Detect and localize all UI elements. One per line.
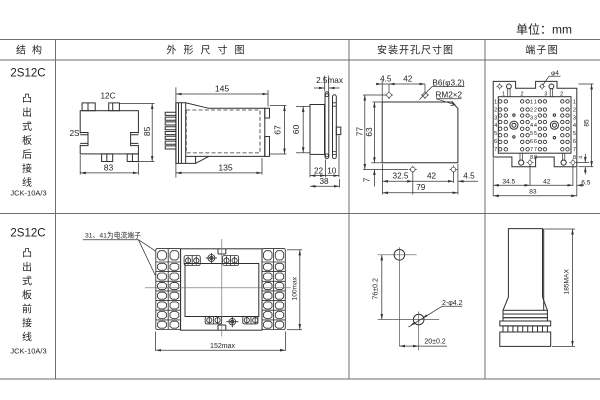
svg-text:12C: 12C — [101, 91, 116, 100]
svg-text:单位：mm: 单位：mm — [516, 22, 572, 37]
svg-text:1: 1 — [573, 100, 576, 106]
svg-text:6: 6 — [534, 139, 537, 145]
svg-text:凸: 凸 — [22, 248, 32, 260]
svg-text:4: 4 — [578, 156, 584, 159]
svg-text:2: 2 — [521, 92, 524, 98]
svg-text:3: 3 — [530, 115, 533, 121]
svg-text:2: 2 — [573, 107, 576, 113]
svg-text:3: 3 — [573, 115, 576, 121]
svg-text:6: 6 — [573, 139, 576, 145]
svg-text:67: 67 — [272, 125, 282, 135]
svg-text:3: 3 — [544, 92, 547, 98]
svg-text:77: 77 — [355, 127, 364, 137]
svg-text:31、41为电流端子: 31、41为电流端子 — [85, 230, 141, 239]
svg-text:结构: 结构 — [16, 44, 48, 57]
svg-text:8: 8 — [534, 155, 537, 161]
svg-text:出: 出 — [22, 261, 32, 274]
svg-text:145: 145 — [215, 84, 230, 94]
svg-text:后: 后 — [22, 149, 32, 161]
svg-text:凸: 凸 — [22, 93, 32, 105]
svg-text:34.5: 34.5 — [502, 178, 515, 185]
svg-text:83: 83 — [529, 189, 537, 196]
svg-text:6: 6 — [530, 139, 533, 145]
svg-text:接: 接 — [22, 317, 32, 330]
svg-text:2-φ4.2: 2-φ4.2 — [442, 300, 463, 307]
svg-text:10: 10 — [327, 167, 337, 176]
svg-text:5: 5 — [534, 131, 537, 137]
svg-text:2S12C: 2S12C — [10, 68, 45, 80]
svg-text:8: 8 — [530, 155, 533, 161]
svg-text:4: 4 — [573, 123, 576, 129]
svg-text:板: 板 — [22, 134, 32, 147]
svg-text:135: 135 — [218, 162, 233, 172]
svg-text:4: 4 — [534, 123, 537, 129]
svg-text:3: 3 — [534, 115, 537, 121]
svg-text:85: 85 — [142, 126, 152, 136]
svg-text:式: 式 — [22, 120, 32, 133]
svg-text:B6(φ3.2): B6(φ3.2) — [432, 78, 464, 87]
svg-text:76±0.2: 76±0.2 — [372, 278, 379, 299]
svg-text:20±0.2: 20±0.2 — [424, 339, 445, 346]
svg-text:7: 7 — [494, 147, 497, 153]
svg-text:7: 7 — [362, 177, 371, 182]
svg-text:线: 线 — [22, 331, 32, 344]
svg-text:42: 42 — [427, 172, 437, 181]
svg-text:1: 1 — [494, 100, 497, 106]
svg-text:83: 83 — [104, 162, 114, 172]
svg-text:2: 2 — [560, 92, 563, 98]
svg-text:线: 线 — [22, 176, 32, 189]
svg-text:板: 板 — [22, 289, 32, 302]
svg-text:JCK-10A/3: JCK-10A/3 — [10, 189, 46, 198]
svg-text:22: 22 — [314, 167, 324, 176]
svg-text:60: 60 — [291, 125, 301, 135]
svg-text:85: 85 — [583, 119, 590, 127]
svg-text:外形尺寸图: 外形尺寸图 — [167, 44, 252, 57]
svg-text:2S: 2S — [70, 129, 81, 138]
svg-text:100max: 100max — [292, 276, 299, 300]
svg-text:6: 6 — [494, 139, 497, 145]
svg-text:端子图: 端子图 — [525, 44, 559, 57]
svg-text:2: 2 — [530, 107, 533, 113]
svg-text:152max: 152max — [210, 343, 235, 350]
svg-text:79: 79 — [416, 183, 426, 192]
svg-text:接: 接 — [22, 162, 32, 175]
svg-text:5: 5 — [530, 131, 533, 137]
svg-text:RM2×2: RM2×2 — [435, 90, 462, 99]
svg-text:前: 前 — [22, 303, 32, 316]
svg-text:式: 式 — [22, 275, 32, 288]
svg-text:出: 出 — [22, 106, 32, 119]
svg-text:2S12C: 2S12C — [10, 228, 45, 240]
svg-text:4.5: 4.5 — [463, 172, 475, 181]
svg-text:63: 63 — [365, 127, 374, 137]
svg-text:8: 8 — [573, 155, 576, 161]
svg-text:7: 7 — [534, 147, 537, 153]
svg-text:JCK-10A/3: JCK-10A/3 — [10, 347, 46, 356]
svg-text:安装开孔尺寸图: 安装开孔尺寸图 — [377, 44, 454, 57]
svg-text:42: 42 — [403, 74, 413, 83]
svg-text:φ4: φ4 — [551, 70, 559, 77]
svg-text:185MAX: 185MAX — [563, 269, 570, 295]
svg-text:7: 7 — [573, 147, 576, 153]
svg-text:32.5: 32.5 — [393, 172, 409, 181]
svg-text:42: 42 — [543, 178, 551, 185]
svg-text:1: 1 — [530, 100, 533, 106]
svg-text:2: 2 — [534, 107, 537, 113]
svg-text:4: 4 — [530, 123, 533, 129]
svg-text:1: 1 — [534, 100, 537, 106]
svg-text:4.5: 4.5 — [380, 74, 392, 83]
svg-text:5: 5 — [494, 131, 497, 137]
svg-text:2.5max: 2.5max — [316, 76, 343, 85]
svg-text:3: 3 — [494, 115, 497, 121]
svg-text:6.5: 6.5 — [581, 179, 590, 186]
svg-text:7: 7 — [530, 147, 533, 153]
svg-text:38: 38 — [319, 177, 329, 186]
svg-text:1: 1 — [502, 92, 505, 98]
svg-text:5: 5 — [573, 131, 576, 137]
svg-text:4: 4 — [494, 123, 497, 129]
svg-text:2: 2 — [494, 107, 497, 113]
